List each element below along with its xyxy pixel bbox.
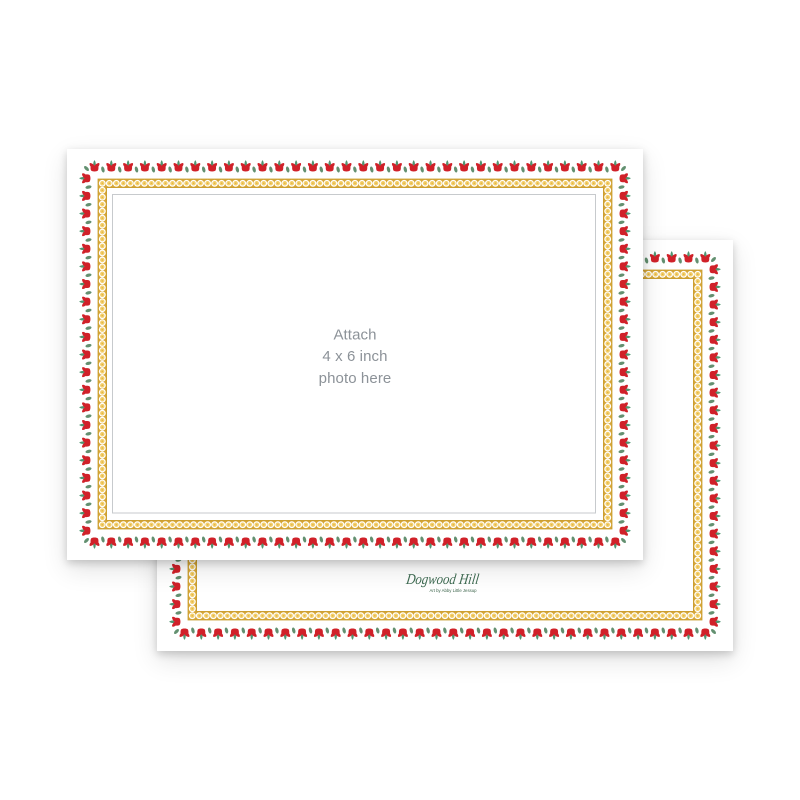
svg-text:Art by Abby Little Jessup: Art by Abby Little Jessup <box>429 588 477 593</box>
svg-text:4 x 6 inch: 4 x 6 inch <box>322 348 387 365</box>
svg-text:Dogwood Hill: Dogwood Hill <box>404 572 480 588</box>
svg-text:Attach: Attach <box>333 327 376 344</box>
svg-text:photo here: photo here <box>319 370 392 387</box>
